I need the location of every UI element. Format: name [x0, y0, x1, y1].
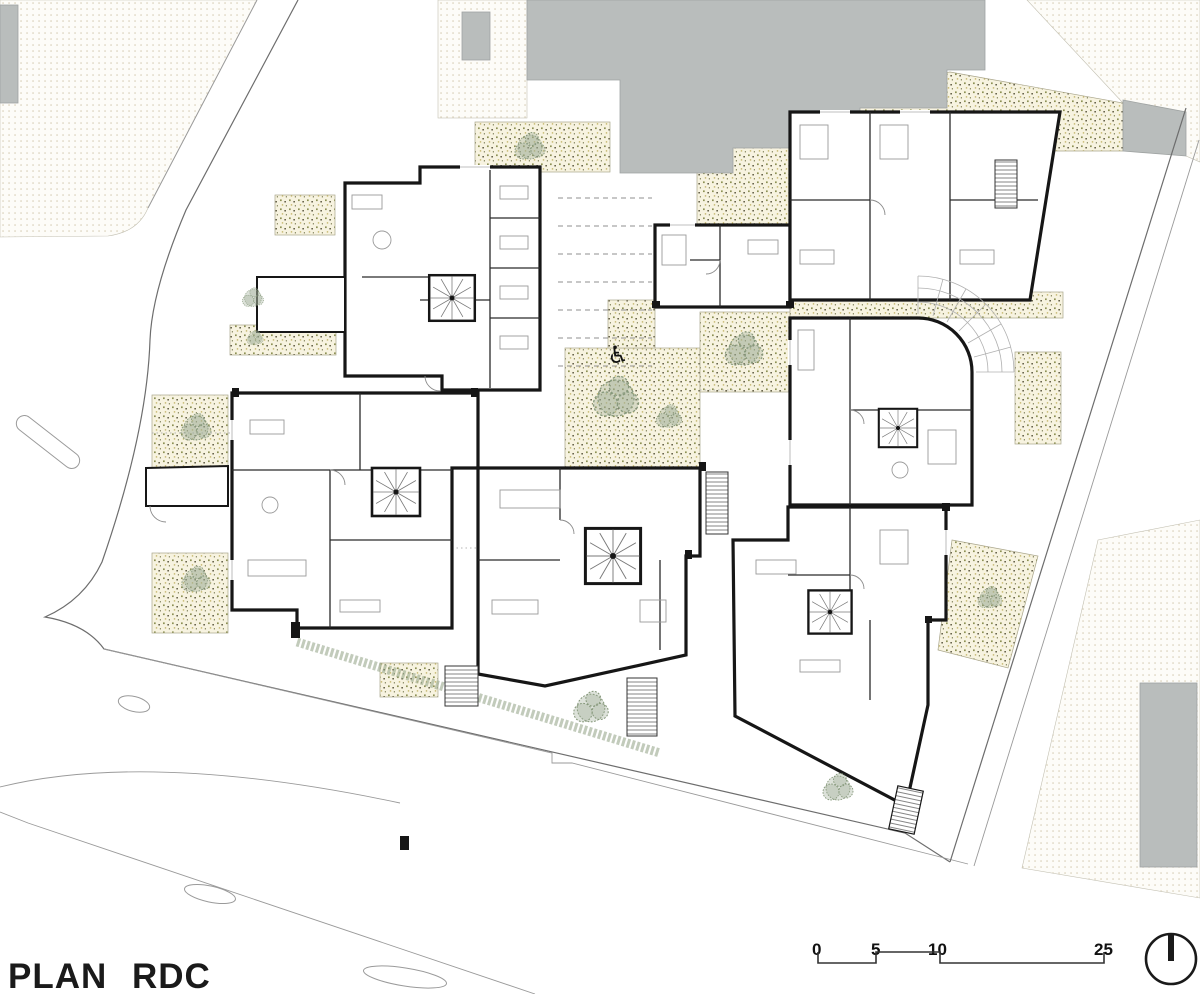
floor-plan-sheet: ♿: [0, 0, 1200, 994]
floor-plan-drawing: ♿: [0, 0, 1200, 994]
spiral-stair-icon: [879, 409, 917, 447]
scale-mark-10: 10: [928, 940, 947, 959]
building-block-e: [790, 112, 1060, 300]
spiral-stair-icon: [429, 275, 475, 321]
context-building: [0, 5, 18, 103]
page-title: PLAN RDC: [8, 957, 211, 994]
spiral-stair-icon: [585, 528, 640, 583]
garden-patch: [275, 195, 335, 235]
wheelchair-icon: ♿: [607, 341, 629, 369]
spiral-stair-icon: [808, 590, 851, 633]
stair: [995, 160, 1017, 208]
spiral-stair-icon: [372, 468, 420, 516]
context-building-east: [1140, 683, 1197, 867]
building-block-c: [478, 468, 700, 686]
garden-patch: [1015, 352, 1061, 444]
traffic-island: [13, 412, 83, 471]
tree-icon: [574, 691, 609, 721]
scale-bar-line: [818, 952, 1104, 963]
traffic-island: [362, 962, 448, 993]
sidewalk-northwest: [0, 0, 257, 237]
traffic-island: [117, 693, 152, 715]
scale-mark-0: 0: [812, 940, 821, 959]
context-building: [462, 12, 490, 60]
garden-patch: [152, 553, 228, 633]
building-block-d: [655, 225, 790, 307]
north-arrow-icon: [1146, 934, 1196, 984]
entrance-posts: [291, 622, 409, 850]
scale-bar: 0 5 10 25: [812, 940, 1113, 963]
